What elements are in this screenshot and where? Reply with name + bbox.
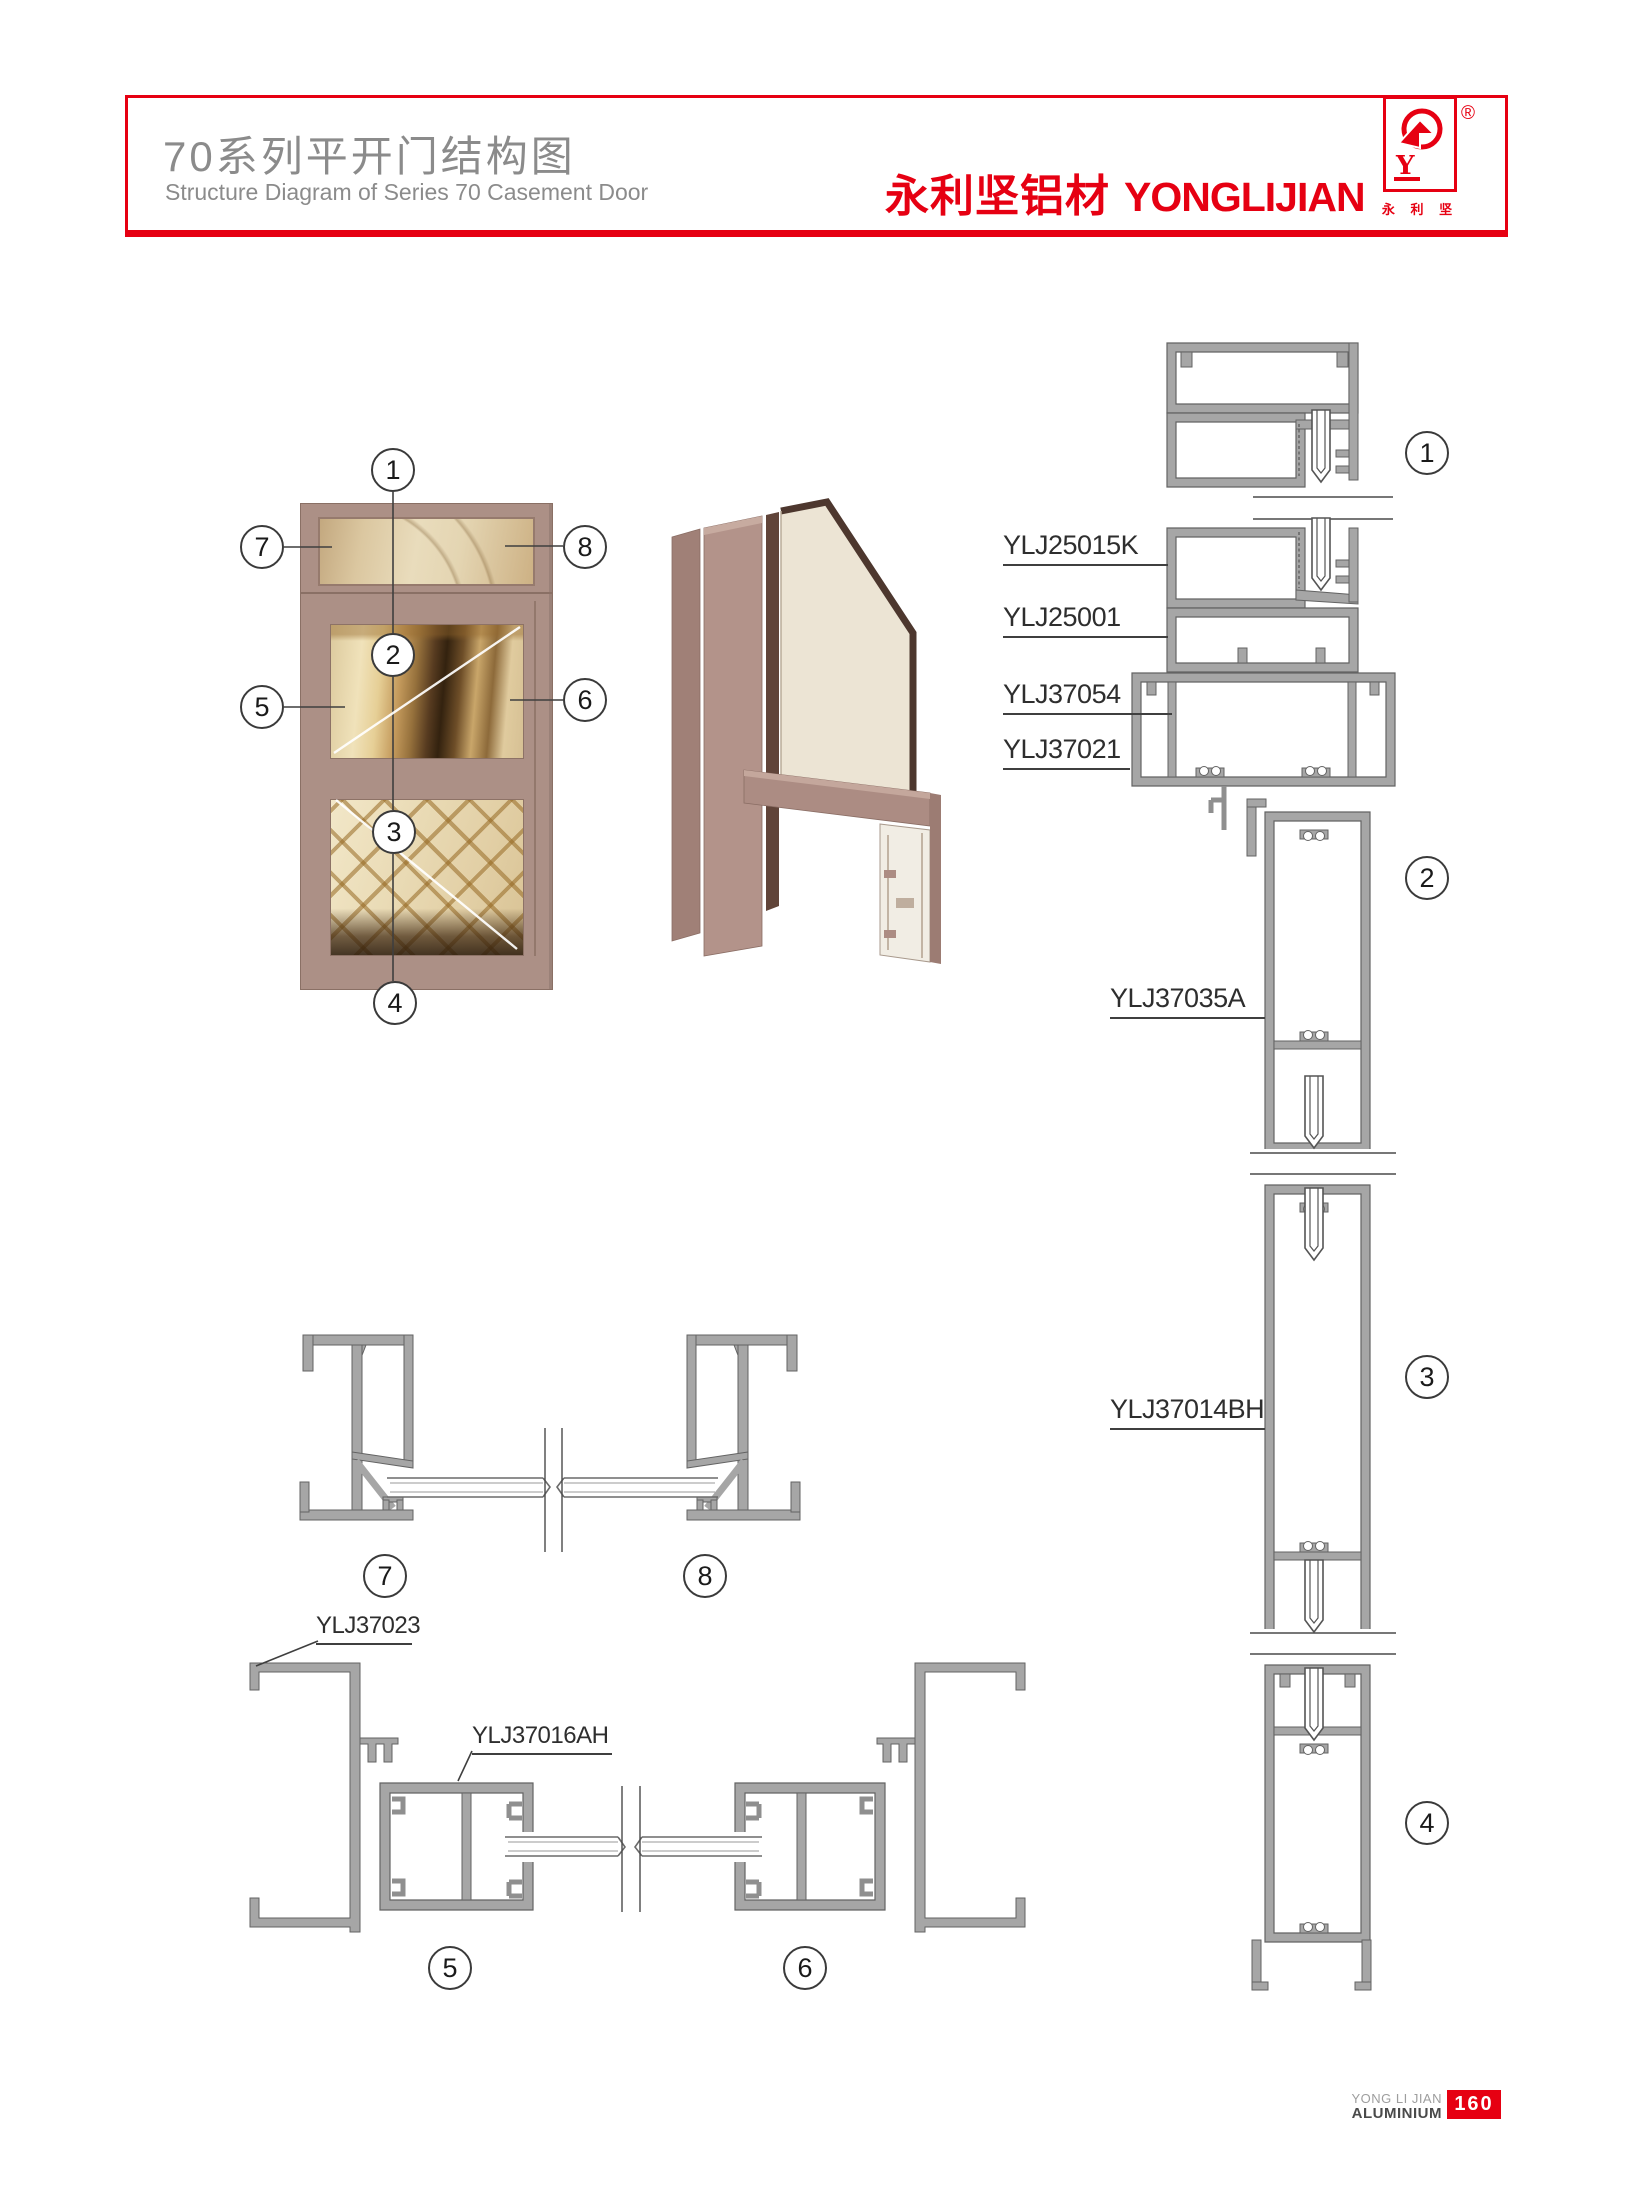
callout-section-6: 6 <box>783 1946 827 1990</box>
render-3d-corner <box>672 502 941 964</box>
brand-logotype: 永利坚铝材 YONGLIJIAN <box>885 160 1365 224</box>
brand-logo: Y <box>1383 96 1457 192</box>
callout-section-1: 1 <box>1405 431 1449 475</box>
door-frame-seam <box>301 592 552 594</box>
technical-drawing-layer <box>0 0 1635 2203</box>
section-5-6-drawing <box>250 1641 1025 1932</box>
profile-ylj25015k <box>1167 528 1358 608</box>
door-sash-seam <box>534 601 536 956</box>
callout-door-2: 2 <box>371 633 415 677</box>
label-ylj37021: YLJ37021 <box>1003 734 1130 770</box>
profile-ylj37035a-ylj37014bh <box>1247 799 1371 1990</box>
footer-brand: YONG LI JIAN ALUMINIUM <box>1280 2092 1442 2123</box>
callout-door-8: 8 <box>563 525 607 569</box>
page-title-en: Structure Diagram of Series 70 Casement … <box>165 179 648 206</box>
callout-section-4: 4 <box>1405 1801 1449 1845</box>
callout-section-3: 3 <box>1405 1355 1449 1399</box>
label-ylj37054: YLJ37054 <box>1003 679 1172 715</box>
label-ylj25015k: YLJ25015K <box>1003 530 1168 566</box>
callout-section-5: 5 <box>428 1946 472 1990</box>
profile-section-1 <box>1167 343 1358 487</box>
page-title-cn: 70系列平开门结构图 <box>163 123 576 184</box>
door-upper-glass <box>330 624 524 759</box>
registered-trademark-icon: ® <box>1461 103 1475 125</box>
logo-caption: 永 利 坚 <box>1377 199 1463 218</box>
label-ylj37016ah: YLJ37016AH <box>472 1722 612 1755</box>
label-ylj25001: YLJ25001 <box>1003 602 1168 638</box>
callout-section-8: 8 <box>683 1554 727 1598</box>
door-transom-glass <box>318 517 535 586</box>
logo-emblem-icon: Y <box>1391 104 1449 184</box>
callout-door-5: 5 <box>240 685 284 729</box>
brand-name-en: YONGLIJIAN <box>1124 174 1365 221</box>
logo-letter: Y <box>1395 151 1415 181</box>
door-elevation-figure <box>300 503 553 990</box>
callout-section-7: 7 <box>363 1554 407 1598</box>
label-ylj37023: YLJ37023 <box>316 1612 412 1645</box>
callout-door-1: 1 <box>371 448 415 492</box>
callout-section-2: 2 <box>1405 856 1449 900</box>
footer-brand-line1: YONG LI JIAN <box>1280 2092 1442 2106</box>
label-ylj37014bh: YLJ37014BH <box>1110 1394 1265 1430</box>
door-lower-glass <box>330 799 524 956</box>
callout-door-4: 4 <box>373 981 417 1025</box>
callout-door-7: 7 <box>240 525 284 569</box>
section-7-8-drawing <box>300 1335 800 1552</box>
catalog-page: 70系列平开门结构图 Structure Diagram of Series 7… <box>0 0 1635 2203</box>
callout-door-3: 3 <box>372 810 416 854</box>
brand-name-cn: 永利坚铝材 <box>885 160 1110 224</box>
page-number-badge: 160 <box>1447 2090 1501 2119</box>
footer-brand-line2: ALUMINIUM <box>1280 2106 1442 2123</box>
break-symbols-right-column <box>1240 410 1405 1740</box>
profile-ylj25001 <box>1167 608 1358 672</box>
label-ylj37035a: YLJ37035A <box>1110 983 1265 1019</box>
callout-door-6: 6 <box>563 678 607 722</box>
